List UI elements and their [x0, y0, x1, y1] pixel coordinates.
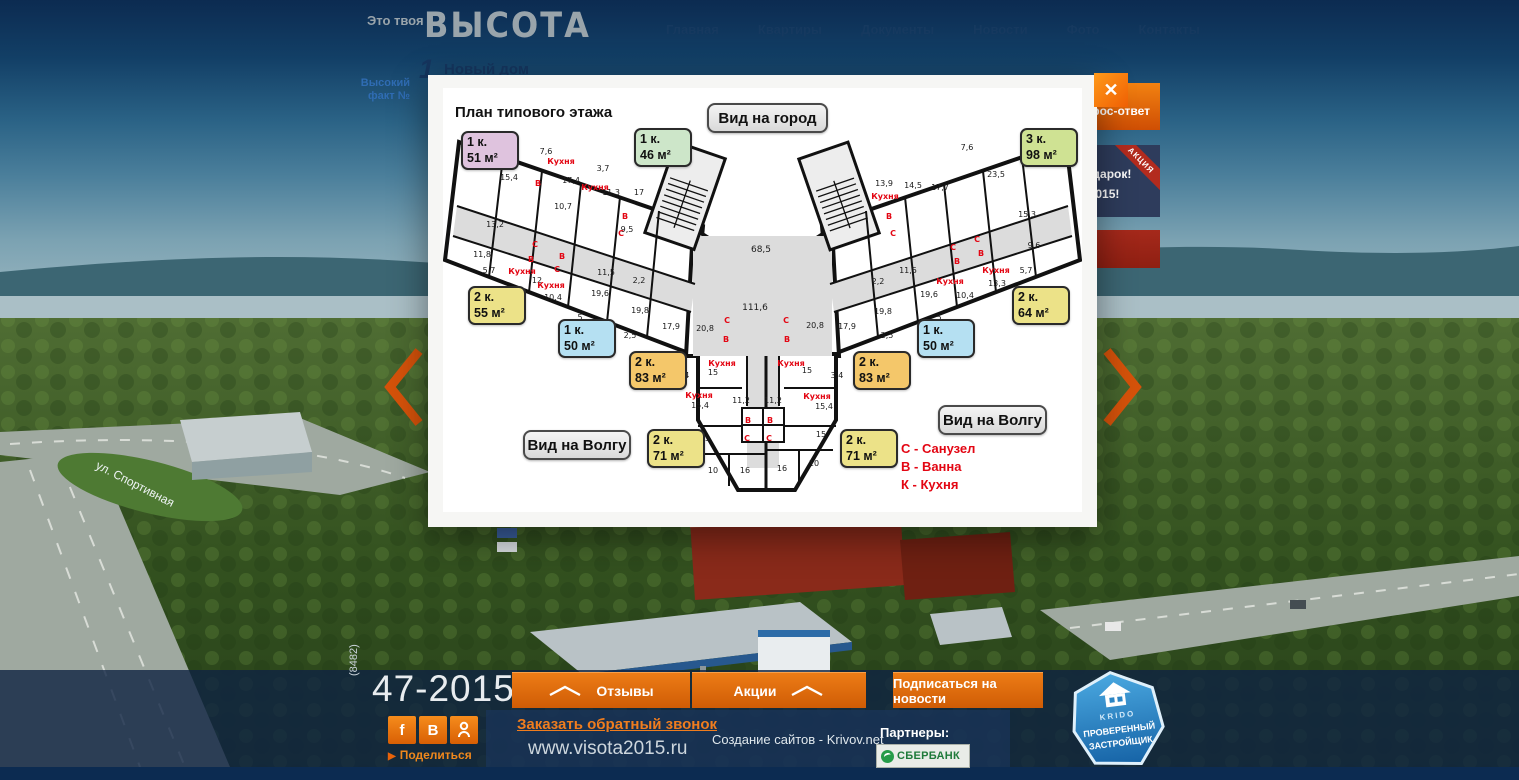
svg-text:3,7: 3,7	[597, 164, 610, 173]
svg-text:15,4: 15,4	[500, 173, 518, 182]
svg-text:С: С	[554, 265, 560, 274]
svg-text:10: 10	[809, 459, 819, 468]
svg-text:19,6: 19,6	[591, 289, 609, 298]
next-arrow-icon[interactable]	[1101, 346, 1143, 428]
svg-text:Кухня: Кухня	[547, 157, 575, 166]
site-url: www.visota2015.ru	[528, 738, 687, 760]
floorplan-card: 7,615,417,43,711,31710,713,29,511,85,712…	[443, 88, 1082, 512]
svg-text:В: В	[723, 335, 729, 344]
svg-text:С: С	[744, 434, 750, 443]
svg-text:В: В	[954, 257, 960, 266]
svg-text:15,4: 15,4	[691, 401, 709, 410]
legend-vanna: В - Ванна	[901, 458, 975, 476]
svg-text:Кухня: Кухня	[537, 281, 565, 290]
facebook-icon[interactable]: f	[388, 716, 416, 744]
odnoklassniki-icon[interactable]	[450, 716, 478, 744]
svg-text:19,8: 19,8	[631, 306, 649, 315]
svg-text:Кухня: Кухня	[982, 266, 1010, 275]
view-city-label: Вид на город	[707, 103, 828, 133]
svg-text:С: С	[890, 229, 896, 238]
nav-item-documents[interactable]: Документы	[861, 22, 934, 37]
gas-kiosk-roof	[758, 630, 830, 637]
svg-text:20,8: 20,8	[696, 324, 714, 333]
svg-text:11,5: 11,5	[597, 268, 615, 277]
apartment-badge-46[interactable]: 1 к.46 м²	[634, 128, 692, 167]
svg-text:Кухня: Кухня	[871, 192, 899, 201]
svg-text:11,8: 11,8	[473, 250, 491, 259]
plan-title: План типового этажа	[455, 104, 612, 121]
stair-core-right	[799, 142, 879, 250]
apartment-badge-71-left[interactable]: 2 к.71 м²	[647, 429, 705, 468]
apartment-badge-50-left[interactable]: 1 к.50 м²	[558, 319, 616, 358]
nav-item-contacts[interactable]: Контакты	[1139, 22, 1200, 37]
svg-text:15,3: 15,3	[1018, 210, 1036, 219]
apartment-badge-83-right[interactable]: 2 к.83 м²	[853, 351, 911, 390]
krido-badge[interactable]: KRIDO ПРОВЕРЕННЫЙ ЗАСТРОЙЩИК	[1064, 665, 1171, 776]
svg-text:5,7: 5,7	[483, 266, 496, 275]
apartment-badge-51[interactable]: 1 к.51 м²	[461, 131, 519, 170]
chevron-up-icon	[548, 685, 582, 697]
nav-item-news[interactable]: Новости	[973, 22, 1028, 37]
svg-text:С: С	[618, 229, 624, 238]
svg-text:В: В	[535, 179, 541, 188]
svg-text:2,2: 2,2	[633, 276, 646, 285]
car	[497, 542, 517, 552]
share-arrow-icon: ▶	[388, 751, 396, 762]
phone-number: 47-2015	[372, 668, 515, 710]
apartment-badge-55[interactable]: 2 к.55 м²	[468, 286, 526, 325]
svg-text:В: В	[784, 335, 790, 344]
svg-text:7,6: 7,6	[540, 147, 553, 156]
prev-arrow-icon[interactable]	[383, 346, 425, 428]
svg-text:20,8: 20,8	[806, 321, 824, 330]
nav-item-apartments[interactable]: Квартиры	[758, 22, 822, 37]
svg-text:13,9: 13,9	[875, 179, 893, 188]
apartment-badge-98[interactable]: 3 к.98 м²	[1020, 128, 1078, 167]
svg-text:10,7: 10,7	[554, 202, 572, 211]
plan-legend: С - Санузел В - Ванна К - Кухня	[901, 440, 975, 494]
apartment-badge-83-left[interactable]: 2 к.83 м²	[629, 351, 687, 390]
svg-text:19,8: 19,8	[874, 307, 892, 316]
callback-link[interactable]: Заказать обратный звонок	[517, 716, 717, 733]
svg-text:17,7: 17,7	[931, 183, 949, 192]
svg-text:2,5: 2,5	[881, 331, 894, 340]
vk-icon[interactable]: В	[419, 716, 447, 744]
svg-text:19,6: 19,6	[920, 290, 938, 299]
house-window	[1109, 697, 1115, 703]
svg-text:Кухня: Кухня	[803, 392, 831, 401]
credits-text[interactable]: Создание сайтов - Krivov.net	[712, 732, 884, 747]
svg-text:В: В	[622, 212, 628, 221]
svg-text:Кухня: Кухня	[708, 359, 736, 368]
svg-text:9,6: 9,6	[1028, 241, 1041, 250]
svg-text:В: В	[767, 416, 773, 425]
svg-text:11,5: 11,5	[899, 266, 917, 275]
svg-text:В: В	[559, 252, 565, 261]
svg-text:С: С	[783, 316, 789, 325]
social-icons: f В	[388, 716, 478, 744]
svg-text:17: 17	[634, 188, 644, 197]
svg-text:23,5: 23,5	[987, 170, 1005, 179]
svg-text:11,2: 11,2	[732, 396, 750, 405]
svg-text:17,9: 17,9	[838, 322, 856, 331]
svg-text:Кухня: Кухня	[777, 359, 805, 368]
view-volga-left-label: Вид на Волгу	[523, 430, 631, 460]
legend-kuhnya: К - Кухня	[901, 476, 975, 494]
svg-text:Кухня: Кухня	[581, 183, 609, 192]
svg-text:14,5: 14,5	[904, 181, 922, 190]
svg-text:111,6: 111,6	[742, 303, 768, 313]
svg-text:2,5: 2,5	[624, 331, 637, 340]
svg-text:С: С	[974, 235, 980, 244]
svg-text:5,7: 5,7	[1020, 266, 1033, 275]
svg-text:Кухня: Кухня	[508, 267, 536, 276]
svg-text:3,4: 3,4	[831, 371, 844, 380]
svg-text:16: 16	[777, 464, 787, 473]
floorplan-modal: 7,615,417,43,711,31710,713,29,511,85,712…	[428, 75, 1097, 527]
logo-brand[interactable]: ВЫСОТА	[424, 4, 591, 45]
svg-text:С: С	[532, 240, 538, 249]
svg-text:Кухня: Кухня	[936, 277, 964, 286]
svg-text:2,2: 2,2	[872, 277, 885, 286]
nav-item-photo[interactable]: Фото	[1067, 22, 1100, 37]
partners-label: Партнеры:	[880, 725, 949, 740]
main-nav: Главная Квартиры Документы Новости Фото …	[666, 22, 1200, 37]
apartment-badge-64[interactable]: 2 к.64 м²	[1012, 286, 1070, 325]
svg-text:13,3: 13,3	[988, 279, 1006, 288]
svg-text:15,4: 15,4	[815, 402, 833, 411]
car	[1105, 622, 1121, 631]
svg-text:10,4: 10,4	[956, 291, 974, 300]
svg-text:68,5: 68,5	[751, 245, 771, 255]
view-volga-right-label: Вид на Волгу	[938, 405, 1047, 435]
logo-tagline: Это твоя	[367, 13, 424, 28]
svg-text:16: 16	[740, 466, 750, 475]
sberbank-icon	[881, 750, 894, 763]
svg-text:17,9: 17,9	[662, 322, 680, 331]
nav-item-home[interactable]: Главная	[666, 22, 719, 37]
red-building-annex	[900, 532, 1015, 600]
svg-text:В: В	[886, 212, 892, 221]
promos-button[interactable]: Акции	[692, 672, 866, 708]
car	[497, 528, 517, 538]
svg-text:17,4: 17,4	[562, 176, 580, 185]
svg-text:Кухня: Кухня	[685, 391, 713, 400]
share-link[interactable]: ▶Поделиться	[388, 748, 472, 762]
svg-text:11,2: 11,2	[764, 396, 782, 405]
fact-label: Высокийфакт №	[352, 77, 410, 102]
car	[1290, 600, 1306, 609]
svg-text:10,4: 10,4	[544, 293, 562, 302]
reviews-button[interactable]: Отзывы	[512, 672, 690, 708]
subscribe-button[interactable]: Подписаться на новости	[893, 672, 1043, 708]
svg-text:С: С	[766, 434, 772, 443]
svg-text:7,6: 7,6	[961, 143, 974, 152]
close-icon[interactable]: ✕	[1094, 73, 1128, 107]
svg-text:С: С	[724, 316, 730, 325]
sberbank-logo[interactable]: СБЕРБАНК	[876, 744, 970, 768]
svg-text:15: 15	[708, 368, 718, 377]
phone-area-code: (8482)	[348, 644, 360, 676]
svg-text:С: С	[950, 243, 956, 252]
apartment-badge-50-right[interactable]: 1 к.50 м²	[917, 319, 975, 358]
legend-sanuzel: С - Санузел	[901, 440, 975, 458]
svg-text:В: В	[528, 255, 534, 264]
svg-text:15: 15	[816, 430, 826, 439]
house-body	[1105, 693, 1126, 707]
svg-text:В: В	[745, 416, 751, 425]
house-window	[1117, 696, 1123, 702]
chevron-up-icon	[790, 685, 824, 697]
svg-text:В: В	[978, 249, 984, 258]
svg-text:13,2: 13,2	[486, 220, 504, 229]
apartment-badge-71-right[interactable]: 2 к.71 м²	[840, 429, 898, 468]
svg-text:10: 10	[708, 466, 718, 475]
